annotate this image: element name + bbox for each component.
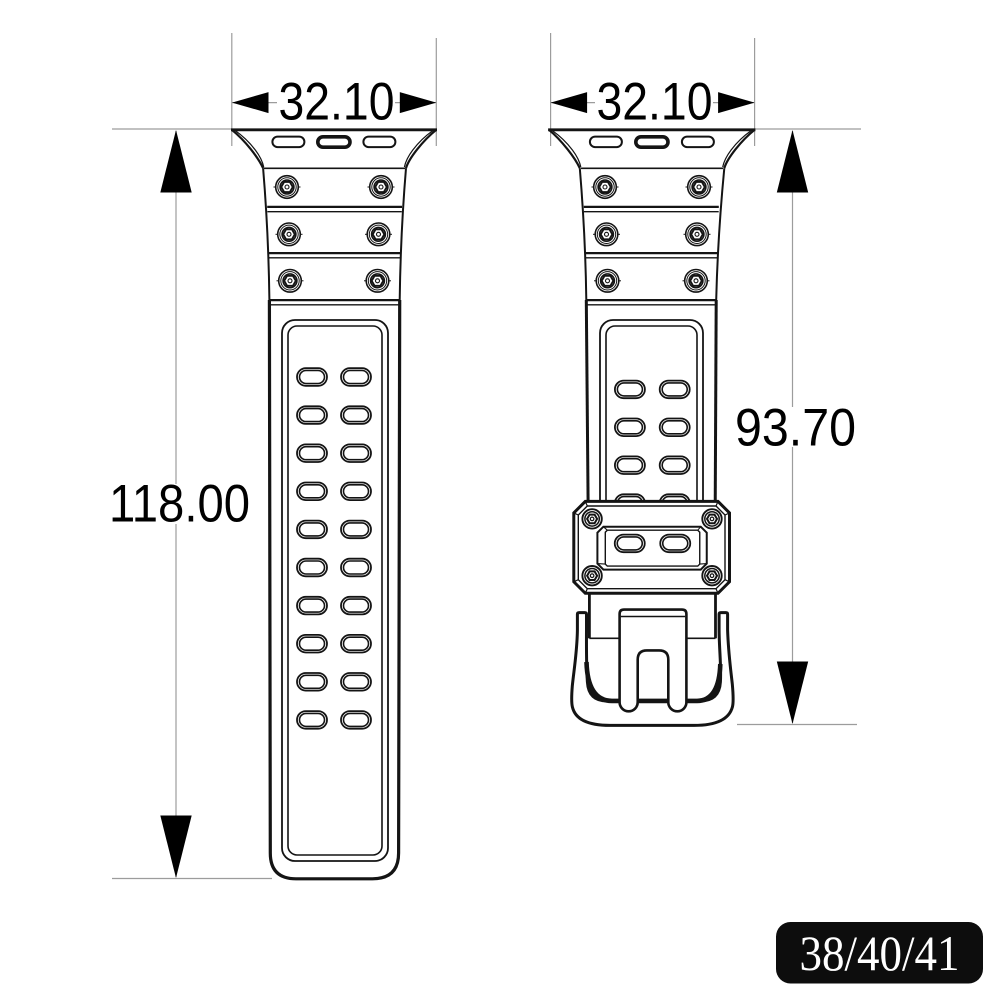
svg-text:118.00: 118.00 xyxy=(109,475,250,534)
svg-text:38/40/41: 38/40/41 xyxy=(800,926,960,981)
svg-text:93.70: 93.70 xyxy=(735,399,856,458)
svg-text:32.10: 32.10 xyxy=(597,73,713,132)
svg-text:32.10: 32.10 xyxy=(279,73,395,132)
